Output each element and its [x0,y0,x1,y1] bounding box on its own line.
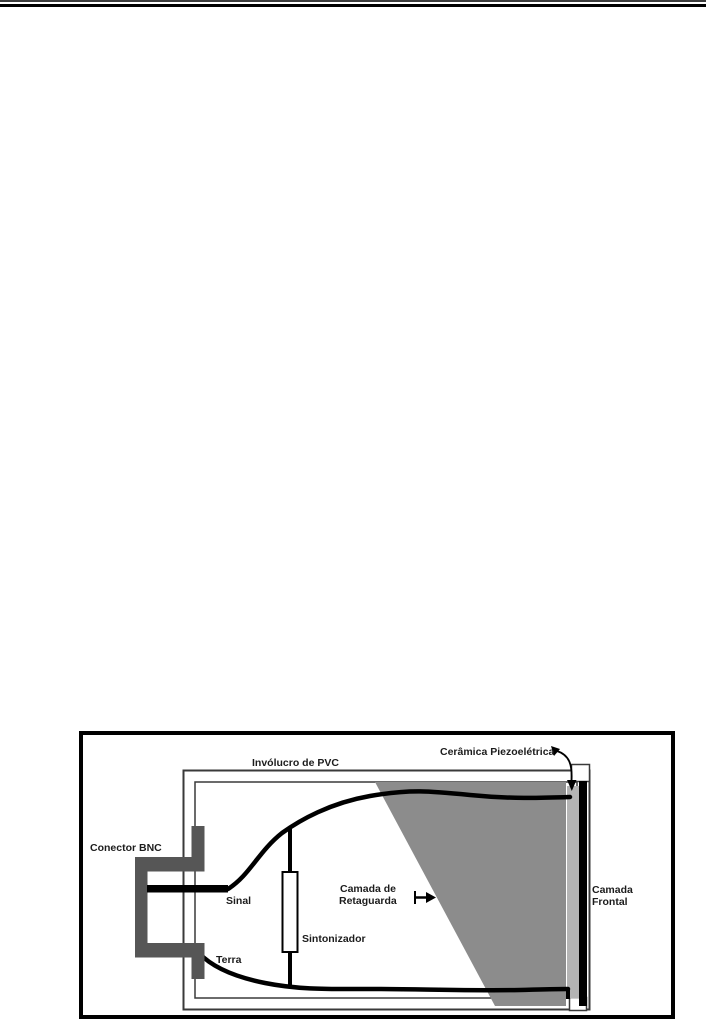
bnc-bottom-flange [192,944,205,979]
signal-conductor [147,885,228,893]
bnc-body [135,857,148,957]
label-ceramic: Cerâmica Piezoelétrica [440,746,555,758]
housing-right-top-tab [572,765,590,782]
bnc-top-flange [192,826,205,859]
label-signal: Sinal [226,895,251,907]
transducer-figure: Invólucro de PVC Cerâmica Piezoelétrica … [0,0,706,1024]
label-connector: Conector BNC [90,842,162,854]
label-front-line2: Frontal [592,896,628,908]
label-ground: Terra [216,954,242,966]
document-page: Invólucro de PVC Cerâmica Piezoelétrica … [0,0,706,1024]
tuner-component [283,872,298,952]
label-housing: Invólucro de PVC [252,757,339,769]
front-layer-bar [579,781,587,1006]
label-front-line1: Camada [592,884,633,896]
piezo-ceramic-strip [567,786,579,998]
label-backing-line1: Camada de [340,883,396,895]
label-tuner: Sintonizador [302,933,366,945]
label-backing-line2: Retaguarda [339,895,397,907]
